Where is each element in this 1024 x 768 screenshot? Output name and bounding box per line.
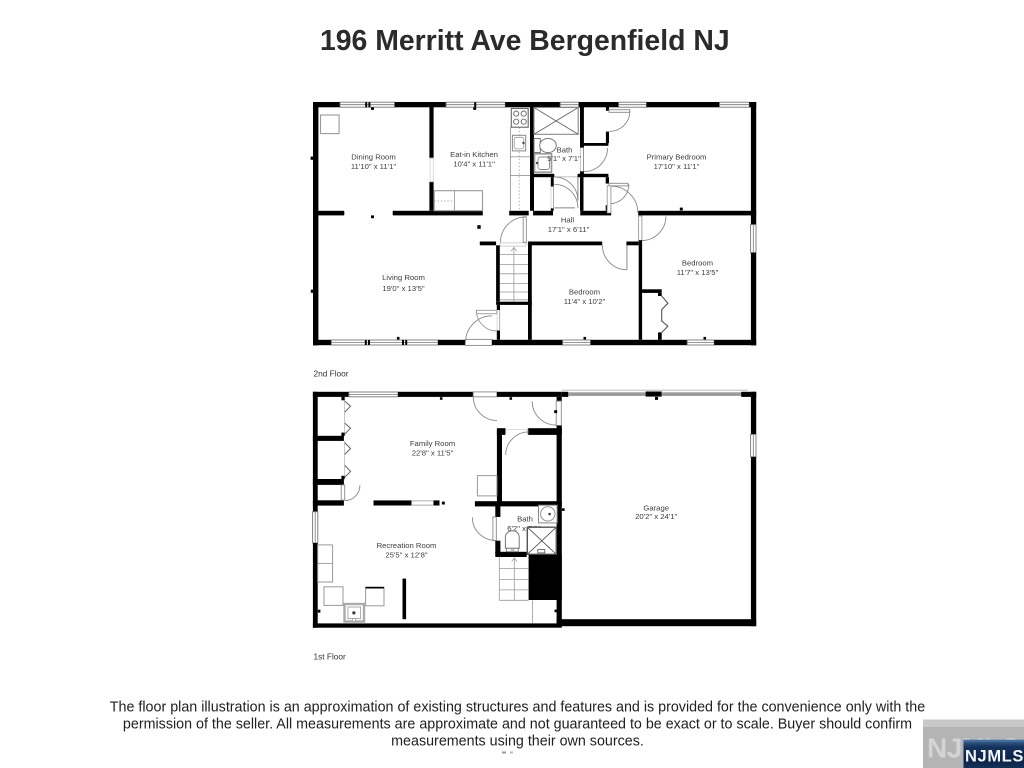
svg-text:Bath: Bath: [517, 515, 533, 524]
svg-text:20'2" x 24'1": 20'2" x 24'1": [635, 512, 677, 521]
svg-text:measurements using their own s: measurements using their own sources.: [391, 734, 644, 750]
svg-text:17'1" x 6'11": 17'1" x 6'11": [548, 225, 590, 234]
svg-text:2nd Floor: 2nd Floor: [314, 369, 349, 379]
svg-text:Eat-in Kitchen: Eat-in Kitchen: [450, 150, 498, 159]
svg-text:Primary Bedroom: Primary Bedroom: [647, 153, 707, 162]
svg-text:10'4" x 11'1": 10'4" x 11'1": [453, 159, 495, 168]
svg-text:Bedroom: Bedroom: [569, 288, 600, 297]
svg-text:196 Merritt Ave Bergenfield NJ: 196 Merritt Ave Bergenfield NJ: [320, 25, 730, 57]
svg-text:Family Room: Family Room: [410, 439, 455, 448]
svg-text:11'4" x 10'2": 11'4" x 10'2": [564, 297, 606, 306]
svg-text:1st Floor: 1st Floor: [314, 652, 347, 662]
svg-text:19'0" x 13'5": 19'0" x 13'5": [382, 284, 424, 293]
svg-text:22'8" x 11'5": 22'8" x 11'5": [412, 448, 454, 457]
svg-text:permission of the seller. All: permission of the seller. All measuremen…: [123, 716, 912, 732]
svg-text:5'1" x 7'1": 5'1" x 7'1": [547, 154, 581, 163]
svg-text:NJMLS: NJMLS: [965, 748, 1024, 766]
svg-text:11'7" x 13'5": 11'7" x 13'5": [677, 268, 719, 277]
svg-text:Dining Room: Dining Room: [351, 153, 395, 162]
svg-text:Recreation Room: Recreation Room: [377, 541, 437, 550]
svg-text:Hall: Hall: [561, 216, 575, 225]
svg-text:Bath: Bath: [557, 145, 573, 154]
svg-text:Bedroom: Bedroom: [682, 259, 713, 268]
svg-text:The floor plan illustration is: The floor plan illustration is an approx…: [110, 699, 925, 715]
svg-text:11'10" x 11'1": 11'10" x 11'1": [351, 162, 397, 171]
svg-text:25'5" x 12'8": 25'5" x 12'8": [385, 550, 427, 559]
svg-text:17'10" x 11'1": 17'10" x 11'1": [654, 162, 700, 171]
svg-text:Living Room: Living Room: [382, 273, 425, 282]
